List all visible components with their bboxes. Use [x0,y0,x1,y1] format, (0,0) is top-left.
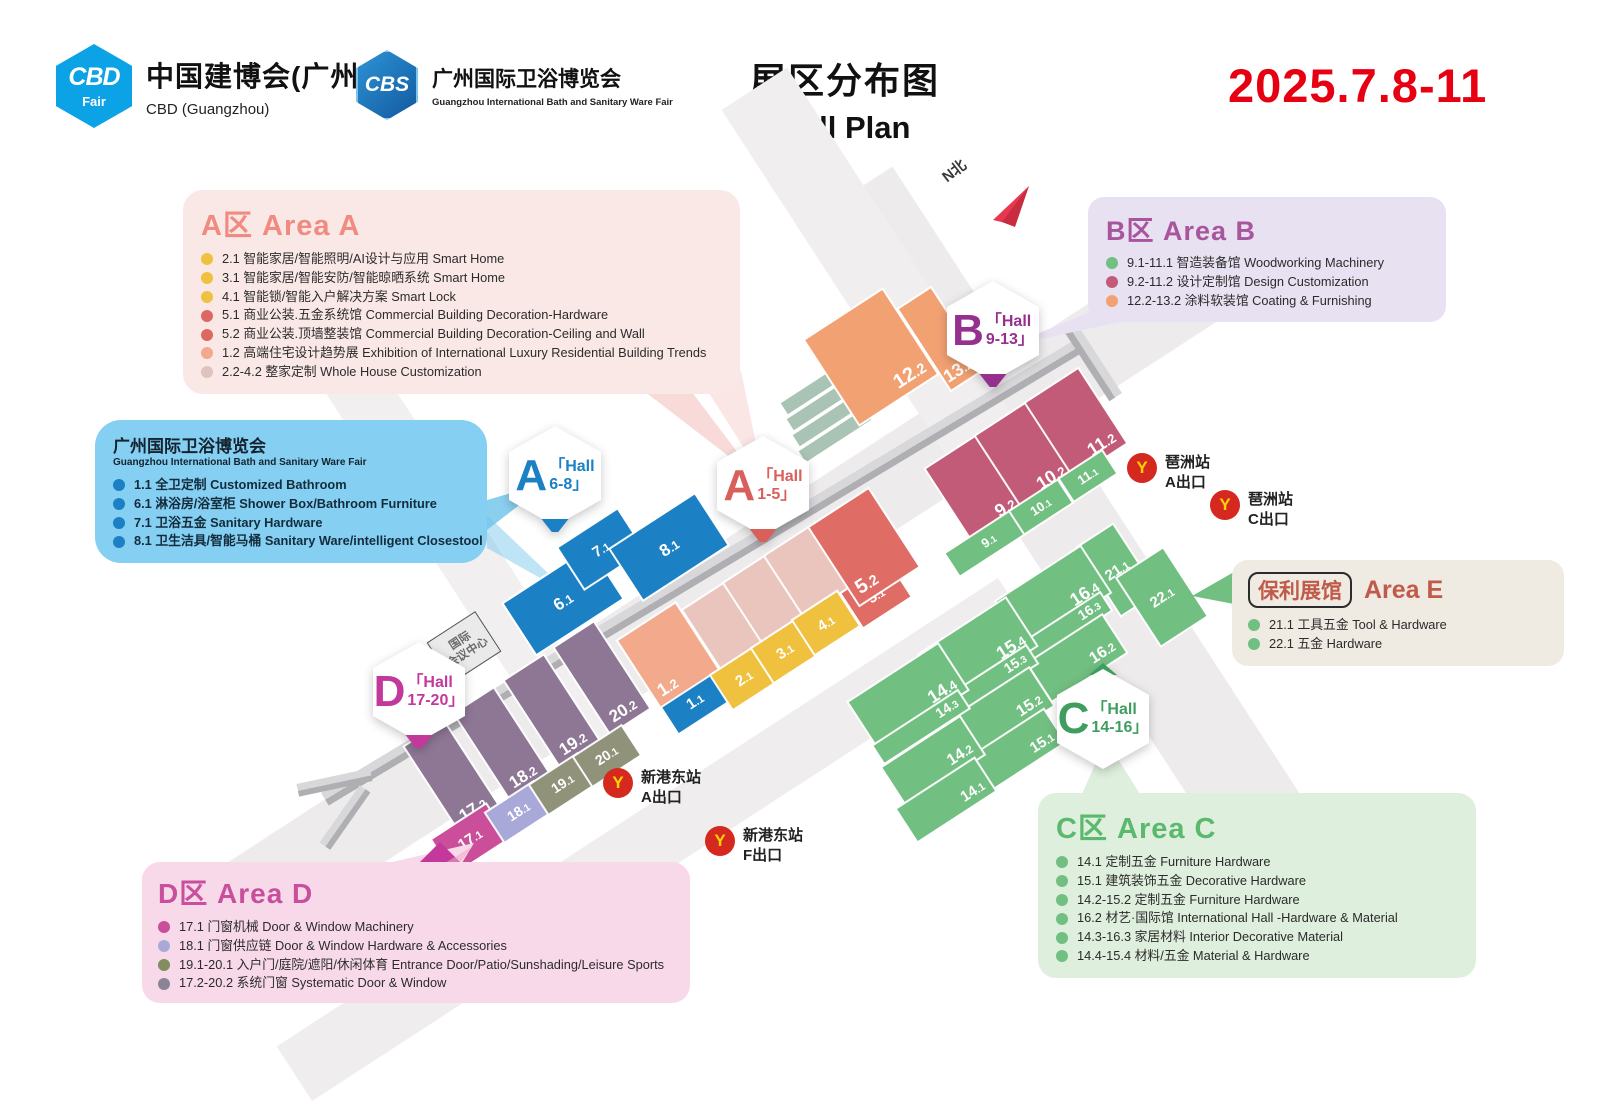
poly-hall-badge: 保利展馆 [1248,572,1352,608]
legend-dot-icon [1056,894,1068,906]
legend-dot-icon [201,366,213,378]
legend-dot-icon [158,921,170,933]
metro-icon: Y [603,768,633,798]
legend-item: 4.1 智能锁/智能入户解决方案 Smart Lock [201,288,722,307]
legend-item: 19.1-20.1 入户门/庭院/遮阳/休闲体育 Entrance Door/P… [158,956,674,975]
legend-item-label: 19.1-20.1 入户门/庭院/遮阳/休闲体育 Entrance Door/P… [179,956,664,975]
legend-dot-icon [1248,619,1260,631]
legend-dot-icon [1056,932,1068,944]
badge-hall-range: 「Hall17-20」 [407,674,464,711]
legend-item-label: 14.3-16.3 家居材料 Interior Decorative Mater… [1077,928,1343,947]
legend-area-c: C区 Area C 14.1 定制五金 Furniture Hardware15… [1038,793,1476,978]
legend-dot-icon [1248,638,1260,650]
legend-dot-icon [1106,295,1118,307]
legend-item: 1.1 全卫定制 Customized Bathroom [113,476,469,495]
badge-letter: A [723,466,755,506]
legend-item: 6.1 淋浴房/浴室柜 Shower Box/Bathroom Furnitur… [113,495,469,514]
legend-area-c-title: C区 Area C [1056,805,1458,847]
legend-item-label: 5.1 商业公装.五金系统馆 Commercial Building Decor… [222,306,608,325]
legend-item-label: 9.2-11.2 设计定制馆 Design Customization [1127,273,1369,292]
legend-dot-icon [158,959,170,971]
metro-icon: Y [1127,453,1157,483]
legend-item-label: 6.1 淋浴房/浴室柜 Shower Box/Bathroom Furnitur… [134,495,437,514]
legend-item: 14.4-15.4 材料/五金 Material & Hardware [1056,947,1458,966]
legend-item: 15.1 建筑装饰五金 Decorative Hardware [1056,872,1458,891]
legend-item-label: 2.1 智能家居/智能照明/AI设计与应用 Smart Home [222,250,504,269]
legend-dot-icon [1056,950,1068,962]
metro-exit: Y琶洲站A出口 [1127,453,1210,492]
legend-area-d: D区 Area D 17.1 门窗机械 Door & Window Machin… [142,862,690,1003]
legend-item-label: 16.2 材艺·国际馆 International Hall -Hardware… [1077,909,1398,928]
hall-plan-poster: CBD Fair 中国建博会(广州) CBD (Guangzhou) CBS 广… [0,0,1597,1116]
legend-dot-icon [113,536,125,548]
badge-pointer [977,374,1009,387]
metro-exit: Y新港东站A出口 [603,768,701,807]
legend-item: 18.1 门窗供应链 Door & Window Hardware & Acce… [158,937,674,956]
legend-bath-subtitle: Guangzhou International Bath and Sanitar… [113,457,469,468]
badge-letter: A [515,456,547,496]
hall-badge-B-9-13: B「Hall9-13」 [947,281,1039,387]
badge-hall-range: 「Hall1-5」 [757,468,802,505]
metro-exit: Y琶洲站C出口 [1210,490,1293,529]
legend-item: 21.1 工具五金 Tool & Hardware [1248,616,1548,635]
legend-item: 12.2-13.2 涂料软装馆 Coating & Furnishing [1106,292,1428,311]
legend-dot-icon [1106,257,1118,269]
legend-area-b-title: B区 Area B [1106,209,1428,248]
metro-icon: Y [705,826,735,856]
badge-letter: C [1058,699,1090,739]
legend-item: 8.1 卫生洁具/智能马桶 Sanitary Ware/intelligent … [113,532,469,551]
metro-exit-label: 新港东站F出口 [743,826,803,865]
legend-item-label: 12.2-13.2 涂料软装馆 Coating & Furnishing [1127,292,1372,311]
legend-item-label: 14.1 定制五金 Furniture Hardware [1077,853,1270,872]
badge-hall-range: 「Hall14-16」 [1091,701,1148,738]
legend-item-label: 17.2-20.2 系统门窗 Systematic Door & Window [179,974,446,993]
legend-item: 14.3-16.3 家居材料 Interior Decorative Mater… [1056,928,1458,947]
legend-area-a-title: A区 Area A [201,202,722,244]
legend-item: 7.1 卫浴五金 Sanitary Hardware [113,514,469,533]
legend-dot-icon [201,291,213,303]
legend-dot-icon [113,498,125,510]
hall-badge-A-6-8: A「Hall6-8」 [509,426,601,532]
legend-area-d-title: D区 Area D [158,872,674,912]
legend-dot-icon [113,479,125,491]
legend-dot-icon [158,940,170,952]
legend-area-e-title: 保利展馆 Area E [1248,572,1548,608]
legend-bath-items: 1.1 全卫定制 Customized Bathroom6.1 淋浴房/浴室柜 … [113,476,469,551]
legend-item-label: 21.1 工具五金 Tool & Hardware [1269,616,1447,635]
legend-item-label: 2.2-4.2 整家定制 Whole House Customization [222,363,482,382]
badge-hall-range: 「Hall6-8」 [549,458,594,495]
legend-item-label: 14.4-15.4 材料/五金 Material & Hardware [1077,947,1310,966]
legend-item-label: 1.1 全卫定制 Customized Bathroom [134,476,347,495]
legend-bath-title: 广州国际卫浴博览会 [113,432,469,457]
legend-area-a-items: 2.1 智能家居/智能照明/AI设计与应用 Smart Home3.1 智能家居… [201,250,722,382]
metro-exit: Y新港东站F出口 [705,826,803,865]
legend-item: 2.2-4.2 整家定制 Whole House Customization [201,363,722,382]
legend-item: 16.2 材艺·国际馆 International Hall -Hardware… [1056,909,1458,928]
hall-badge-D-17-20: D「Hall17-20」 [373,642,465,748]
metro-icon: Y [1210,490,1240,520]
legend-item-label: 3.1 智能家居/智能安防/智能晾晒系统 Smart Home [222,269,505,288]
legend-item: 14.2-15.2 定制五金 Furniture Hardware [1056,891,1458,910]
legend-item-label: 14.2-15.2 定制五金 Furniture Hardware [1077,891,1300,910]
legend-item-label: 8.1 卫生洁具/智能马桶 Sanitary Ware/intelligent … [134,532,483,551]
legend-item-label: 4.1 智能锁/智能入户解决方案 Smart Lock [222,288,456,307]
legend-dot-icon [201,329,213,341]
metro-exit-label: 琶洲站A出口 [1165,453,1210,492]
legend-dot-icon [201,253,213,265]
legend-dot-icon [1056,856,1068,868]
legend-item: 14.1 定制五金 Furniture Hardware [1056,853,1458,872]
legend-area-a: A区 Area A 2.1 智能家居/智能照明/AI设计与应用 Smart Ho… [183,190,740,394]
legend-item: 17.1 门窗机械 Door & Window Machinery [158,918,674,937]
legend-dot-icon [158,978,170,990]
legend-dot-icon [1056,875,1068,887]
badge-letter: D [374,672,406,712]
legend-item: 2.1 智能家居/智能照明/AI设计与应用 Smart Home [201,250,722,269]
legend-item: 1.2 高端住宅设计趋势展 Exhibition of Internationa… [201,344,722,363]
legend-item: 22.1 五金 Hardware [1248,635,1548,654]
badge-pointer [539,519,571,532]
legend-item: 3.1 智能家居/智能安防/智能晾晒系统 Smart Home [201,269,722,288]
legend-item-label: 17.1 门窗机械 Door & Window Machinery [179,918,414,937]
metro-exit-label: 琶洲站C出口 [1248,490,1293,529]
badge-pointer [403,735,435,748]
legend-item-label: 15.1 建筑装饰五金 Decorative Hardware [1077,872,1306,891]
legend-item-label: 9.1-11.1 智造装备馆 Woodworking Machinery [1127,254,1384,273]
legend-area-e-items: 21.1 工具五金 Tool & Hardware22.1 五金 Hardwar… [1248,616,1548,654]
legend-item: 17.2-20.2 系统门窗 Systematic Door & Window [158,974,674,993]
legend-item-label: 5.2 商业公装.顶墙整装馆 Commercial Building Decor… [222,325,645,344]
legend-area-b: B区 Area B 9.1-11.1 智造装备馆 Woodworking Mac… [1088,197,1446,322]
legend-item-label: 18.1 门窗供应链 Door & Window Hardware & Acce… [179,937,507,956]
legend-item: 5.1 商业公装.五金系统馆 Commercial Building Decor… [201,306,722,325]
hall-badge-A-1-5: A「Hall1-5」 [717,436,809,542]
legend-dot-icon [1106,276,1118,288]
legend-item-label: 22.1 五金 Hardware [1269,635,1382,654]
badge-hall-range: 「Hall9-13」 [986,313,1034,350]
legend-area-d-items: 17.1 门窗机械 Door & Window Machinery18.1 门窗… [158,918,674,993]
metro-exit-label: 新港东站A出口 [641,768,701,807]
hall-badge-C-14-16: C「Hall14-16」 [1057,663,1149,769]
legend-dot-icon [201,272,213,284]
legend-item: 9.2-11.2 设计定制馆 Design Customization [1106,273,1428,292]
legend-area-e: 保利展馆 Area E 21.1 工具五金 Tool & Hardware22.… [1232,560,1564,666]
legend-item: 5.2 商业公装.顶墙整装馆 Commercial Building Decor… [201,325,722,344]
legend-area-b-items: 9.1-11.1 智造装备馆 Woodworking Machinery9.2-… [1106,254,1428,310]
badge-pointer [747,529,779,542]
legend-dot-icon [1056,913,1068,925]
legend-dot-icon [113,517,125,529]
legend-item-label: 7.1 卫浴五金 Sanitary Hardware [134,514,322,533]
legend-area-c-items: 14.1 定制五金 Furniture Hardware15.1 建筑装饰五金 … [1056,853,1458,966]
legend-item: 9.1-11.1 智造装备馆 Woodworking Machinery [1106,254,1428,273]
legend-dot-icon [201,347,213,359]
legend-item-label: 1.2 高端住宅设计趋势展 Exhibition of Internationa… [222,344,706,363]
legend-dot-icon [201,310,213,322]
legend-bath-fair: 广州国际卫浴博览会 Guangzhou International Bath a… [95,420,487,563]
badge-letter: B [952,311,984,351]
